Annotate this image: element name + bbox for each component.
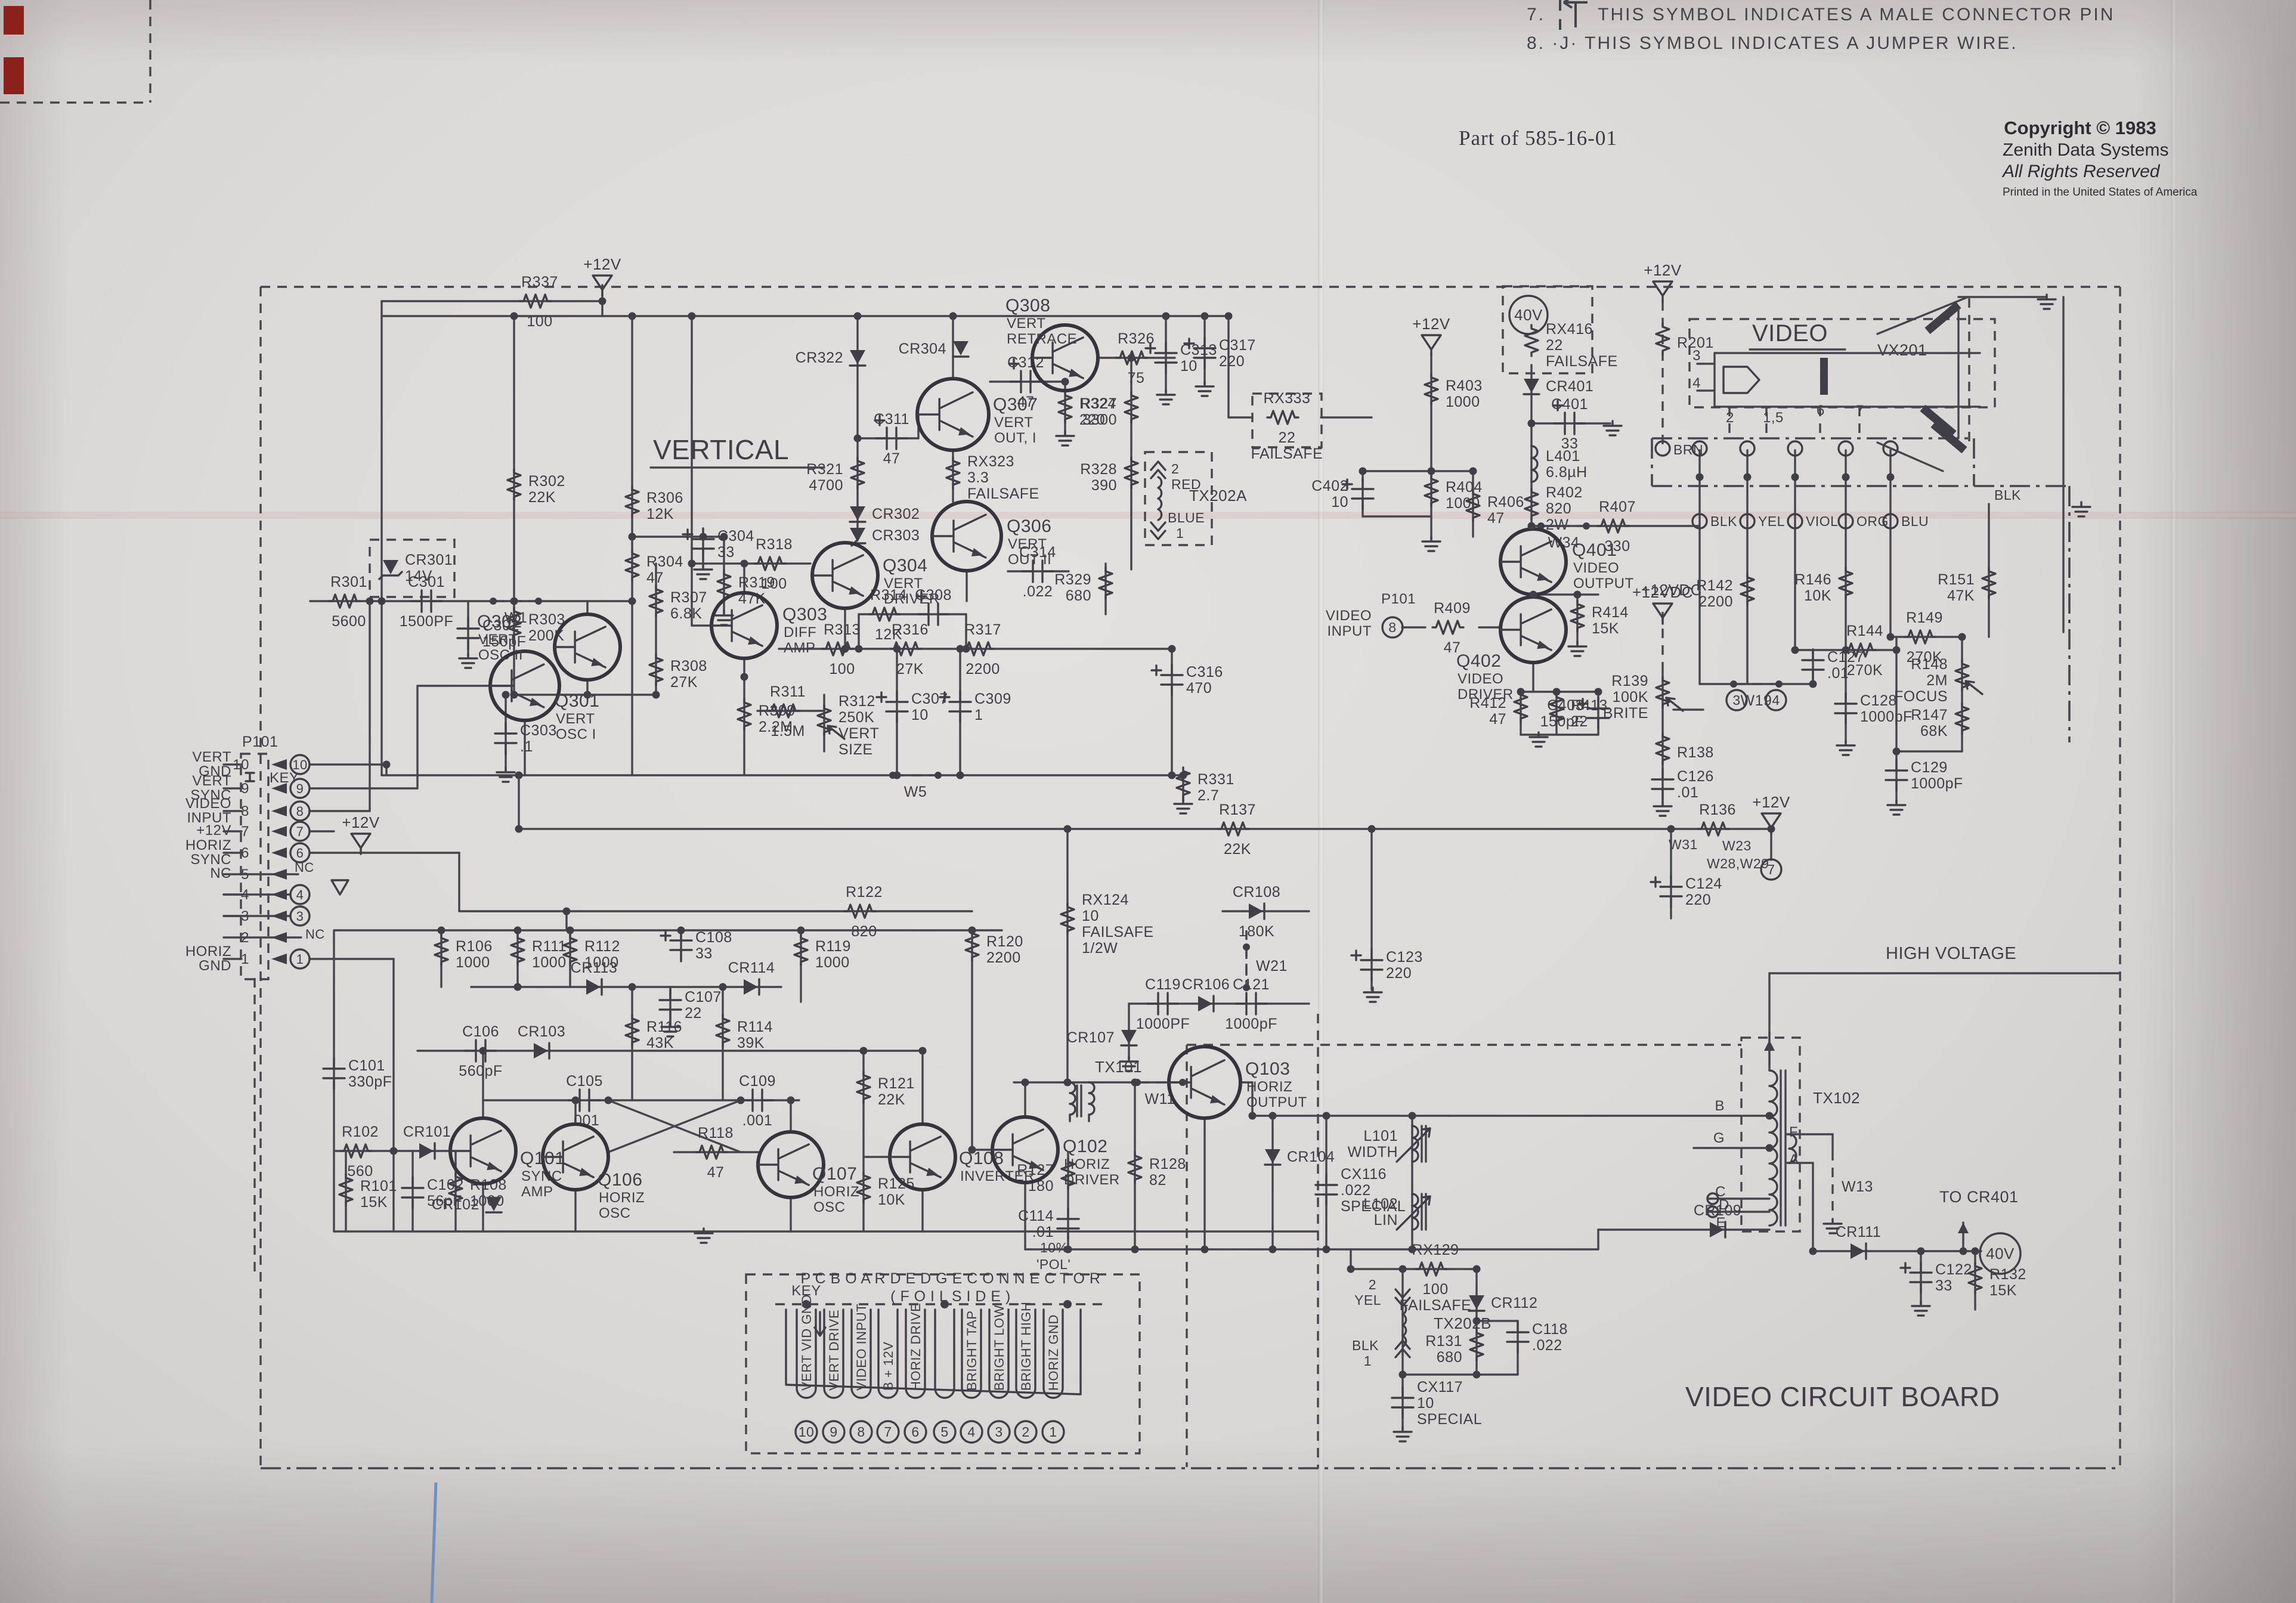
ground-symbol bbox=[715, 611, 733, 625]
power-triangle bbox=[351, 834, 370, 854]
part-CR108: CR108 bbox=[1233, 884, 1280, 900]
power-triangle bbox=[1762, 813, 1781, 834]
transistor-Q106-label: Q106 bbox=[598, 1170, 642, 1190]
transistor-Q302-label: OSC II bbox=[478, 647, 523, 663]
part-R308: 27K bbox=[670, 674, 698, 691]
part-R403: 1000 bbox=[1446, 394, 1480, 410]
part-L101: WIDTH bbox=[1348, 1144, 1398, 1161]
p101-pin-number: 9 bbox=[241, 781, 249, 797]
diode-symbol bbox=[1851, 1243, 1866, 1259]
dashed-enclosure bbox=[1689, 319, 1995, 407]
part-R119: 1000 bbox=[815, 954, 850, 971]
part-RX416: 22 bbox=[1546, 337, 1563, 354]
transistor-Q304-label: DRIVER bbox=[884, 591, 940, 607]
p101-pin-arrow bbox=[271, 847, 287, 858]
p101-pin-name: VERT bbox=[192, 749, 231, 765]
transistor-Q102-label: Q102 bbox=[1063, 1137, 1107, 1156]
part-R118: R118 bbox=[698, 1125, 734, 1141]
part-C119: 1000PF bbox=[1136, 1016, 1190, 1032]
p101-pin-number: 1 bbox=[241, 951, 249, 967]
title-vertical: VERTICAL bbox=[653, 434, 789, 465]
junction-dot bbox=[957, 772, 964, 779]
part-C313: 10 bbox=[1180, 358, 1197, 375]
title-vx201: VX201 bbox=[1877, 341, 1927, 359]
video-pin-bar bbox=[1820, 358, 1828, 395]
part-R146: 10K bbox=[1804, 587, 1831, 604]
p101-pin-arrow bbox=[271, 806, 287, 816]
transistor-Q308-emitter-arrow bbox=[1069, 369, 1081, 377]
transistor-Q304-label: Q304 bbox=[883, 556, 927, 575]
transistor-Q307-label: VERT bbox=[994, 414, 1033, 431]
junction-dot bbox=[383, 761, 391, 769]
part-R148: R148 bbox=[1911, 656, 1948, 673]
title-tx101: TX101 bbox=[1095, 1058, 1142, 1076]
part-R317: 2200 bbox=[966, 661, 1000, 677]
part-R151: R151 bbox=[1938, 571, 1975, 588]
part-R122: 820 bbox=[851, 923, 877, 940]
transistor-Q108-emitter-arrow bbox=[926, 1168, 938, 1176]
transistor-Q106-label: OSC bbox=[599, 1205, 631, 1221]
part-R326: R326 bbox=[1118, 330, 1155, 347]
power-label: +12V bbox=[583, 255, 621, 273]
tx102-primary bbox=[1769, 1070, 1777, 1226]
junction-dot bbox=[688, 312, 696, 320]
part-C107: 22 bbox=[685, 1005, 702, 1022]
jumper-dot bbox=[1583, 522, 1590, 530]
p101-pin-number: 3 bbox=[241, 908, 249, 924]
p101-pin-circle-number: 10 bbox=[292, 757, 307, 772]
part-R407: R407 bbox=[1599, 499, 1636, 515]
part-C108: 33 bbox=[695, 945, 713, 962]
part-C121: 1000pF bbox=[1225, 1016, 1277, 1032]
wire bbox=[1877, 297, 1968, 334]
part-CR104: CR104 bbox=[1287, 1149, 1335, 1165]
power-label: +12V bbox=[1412, 315, 1450, 333]
part-R402: R402 bbox=[1546, 484, 1583, 501]
junction-dot bbox=[719, 983, 727, 991]
transistor-Q107-label: Q107 bbox=[812, 1164, 857, 1184]
part-C128: C128 bbox=[1860, 692, 1897, 709]
junction-dot bbox=[1347, 1265, 1355, 1273]
junction-dot bbox=[629, 533, 636, 541]
part-CR101: CR101 bbox=[403, 1124, 451, 1140]
title-1: 1 bbox=[1176, 525, 1184, 541]
junction-dot bbox=[1893, 748, 1901, 756]
edge-finger-label: B + 12V bbox=[881, 1342, 896, 1391]
title-video-circuit-board: VIDEO CIRCUIT BOARD bbox=[1685, 1381, 2000, 1412]
title-b: B bbox=[1715, 1098, 1725, 1114]
junction-dot bbox=[1201, 1246, 1209, 1254]
junction-dot bbox=[1528, 522, 1536, 530]
part-R114: R114 bbox=[737, 1019, 773, 1035]
transistor-Q304-emitter-arrow bbox=[849, 586, 861, 595]
title-input: INPUT bbox=[1328, 623, 1372, 639]
title--12vdc: +12VDC bbox=[1641, 581, 1702, 599]
junction-dot bbox=[1399, 1371, 1407, 1379]
edge-finger-number: 7 bbox=[884, 1424, 892, 1440]
transistor-Q103-emitter-arrow bbox=[1210, 1095, 1222, 1103]
junction-dot bbox=[1249, 1112, 1257, 1120]
p101-pin-name: +12V bbox=[196, 822, 231, 838]
part-CR301: CR301 bbox=[405, 552, 453, 568]
junction-dot bbox=[1917, 1248, 1925, 1255]
part-R321: 4700 bbox=[809, 477, 843, 494]
part-R316: R316 bbox=[892, 621, 929, 638]
title-high-voltage: HIGH VOLTAGE bbox=[1886, 944, 2016, 963]
junction-dot bbox=[797, 927, 805, 934]
diode-symbol bbox=[1198, 996, 1214, 1011]
part-C307: 10 bbox=[911, 707, 929, 723]
junction-dot bbox=[572, 1097, 580, 1104]
junction-dot bbox=[737, 1097, 745, 1104]
edge-finger-number: 1 bbox=[1049, 1424, 1057, 1440]
transistor-Q306-label: OUT II bbox=[1008, 552, 1051, 568]
title-w13: W13 bbox=[1842, 1178, 1873, 1195]
part-R317: R317 bbox=[964, 621, 1001, 638]
part-R403: R403 bbox=[1446, 377, 1483, 394]
part-R311: R311 bbox=[770, 683, 806, 700]
part-C105: C105 bbox=[566, 1073, 603, 1090]
part-CR111: CR111 bbox=[1836, 1224, 1882, 1240]
ground-symbol bbox=[1364, 988, 1382, 1002]
transistor-Q103-label: HORIZ bbox=[1246, 1079, 1292, 1095]
junction-dot bbox=[438, 927, 445, 934]
part-CX117: SPECIAL bbox=[1417, 1411, 1482, 1428]
jumper-dot bbox=[535, 598, 542, 605]
part-C106: 560pF bbox=[459, 1063, 502, 1079]
part-CR303: CR303 bbox=[872, 527, 920, 544]
wire bbox=[1877, 442, 1943, 471]
title-w28-w29: W28,W29 bbox=[1707, 856, 1769, 871]
pot-wiper-arrow bbox=[1966, 681, 1982, 694]
part-RX333: FAILSAFE bbox=[1251, 445, 1323, 462]
ground-symbol bbox=[2072, 502, 2090, 516]
p101-pin-arrow bbox=[271, 889, 287, 900]
part-R102: 560 bbox=[347, 1163, 373, 1180]
ref-circle-number: 8 bbox=[1388, 620, 1396, 635]
part-R114: 39K bbox=[737, 1035, 765, 1051]
junction-dot bbox=[720, 533, 728, 541]
part-R414: 15K bbox=[1592, 620, 1619, 637]
part-R308: R308 bbox=[670, 658, 707, 674]
transistor-Q301-label: VERT bbox=[556, 711, 595, 727]
part-CR102: CR102 bbox=[432, 1196, 479, 1213]
p101-pin-number: 2 bbox=[241, 930, 249, 946]
part-R306: R306 bbox=[646, 490, 683, 506]
junction-dot bbox=[514, 983, 522, 991]
part-R318: R318 bbox=[756, 536, 793, 553]
part-RX416: FAILSAFE bbox=[1546, 353, 1618, 370]
part-RX129: FAILSAFE bbox=[1400, 1297, 1472, 1314]
edge-finger-number: 10 bbox=[799, 1424, 815, 1440]
edge-finger-label: VIDEO INPUT bbox=[854, 1304, 869, 1391]
junction-dot bbox=[741, 673, 748, 681]
part-R132: R132 bbox=[1989, 1266, 2026, 1283]
jumper-dot bbox=[1243, 943, 1250, 951]
part-R404: R404 bbox=[1446, 479, 1483, 496]
yoke-arrow bbox=[1151, 522, 1165, 539]
junction-dot bbox=[1473, 1265, 1481, 1273]
part-R120: R120 bbox=[986, 933, 1023, 950]
part-R147: R147 bbox=[1911, 707, 1948, 723]
part-R302: R302 bbox=[528, 473, 565, 490]
transistor-Q402-label: DRIVER bbox=[1458, 686, 1514, 703]
transistor-Q302-emitter-arrow bbox=[591, 658, 603, 666]
yoke-winding bbox=[1158, 477, 1162, 520]
resistor-symbol bbox=[1267, 411, 1298, 424]
part-R301: R301 bbox=[330, 574, 367, 590]
junction-dot bbox=[957, 645, 964, 653]
title-blk: BLK bbox=[1994, 487, 2021, 503]
part-R409: R409 bbox=[1434, 600, 1471, 617]
title-10-: 10% bbox=[1040, 1240, 1069, 1255]
ground-symbol bbox=[1196, 382, 1214, 396]
part-C106: C106 bbox=[462, 1023, 499, 1040]
junction-dot bbox=[1428, 468, 1435, 475]
part-R301: 5600 bbox=[332, 613, 366, 630]
junction-dot bbox=[629, 598, 636, 605]
p101-key-slot bbox=[246, 773, 254, 781]
power-label: +12V bbox=[342, 813, 380, 831]
part-R142: 2200 bbox=[1698, 593, 1733, 610]
part-C303: C303 bbox=[520, 722, 557, 739]
junction-dot bbox=[854, 435, 862, 442]
jumper-dot bbox=[490, 598, 497, 605]
transistor-Q103-label: Q103 bbox=[1245, 1059, 1290, 1079]
junction-dot bbox=[563, 908, 571, 915]
transistor-Q308-label: Q308 bbox=[1005, 296, 1050, 315]
part-CR112: CR112 bbox=[1491, 1295, 1537, 1311]
p101-pin-arrow bbox=[271, 911, 287, 921]
jumper-dot bbox=[935, 772, 942, 779]
junction-dot bbox=[968, 927, 976, 934]
part-C402: C402 bbox=[1311, 478, 1348, 494]
part-R111: R111 bbox=[532, 938, 567, 955]
junction-dot bbox=[502, 691, 510, 699]
voltage-circle-label: 40V bbox=[1514, 306, 1543, 324]
part-C126: C126 bbox=[1677, 768, 1714, 785]
part-R139: BRITE bbox=[1603, 705, 1648, 722]
part-C126: .01 bbox=[1677, 784, 1698, 801]
part-CX116: CX116 bbox=[1341, 1166, 1387, 1183]
part-CR108: 180K bbox=[1239, 923, 1274, 940]
transistor-Q306-emitter-arrow bbox=[971, 548, 983, 556]
transistor-Q302-label: Q302 bbox=[477, 612, 522, 632]
part-R139: R139 bbox=[1611, 673, 1648, 689]
transistor-Q101-emitter-arrow bbox=[487, 1162, 499, 1170]
part-C107: C107 bbox=[685, 989, 722, 1005]
title-nc: NC bbox=[305, 927, 325, 942]
title-tx102: TX102 bbox=[1813, 1089, 1860, 1107]
junction-dot bbox=[1553, 688, 1561, 696]
power-triangle bbox=[1422, 335, 1441, 355]
title-2: 2 bbox=[1369, 1277, 1376, 1292]
junction-dot bbox=[1064, 825, 1072, 833]
p101-pin-arrow bbox=[271, 932, 287, 943]
part-RX416: RX416 bbox=[1546, 321, 1593, 338]
part-C109: C109 bbox=[739, 1073, 776, 1090]
part-R414: R414 bbox=[1592, 604, 1629, 621]
diode-symbol bbox=[850, 506, 865, 522]
part-C122: C122 bbox=[1935, 1261, 1972, 1278]
title-1-5: 1,5 bbox=[1763, 410, 1784, 426]
part-R302: 22K bbox=[528, 489, 556, 506]
part-RX129: 100 bbox=[1422, 1281, 1448, 1298]
junction-dot bbox=[1809, 680, 1817, 688]
edge-finger-number: 4 bbox=[967, 1424, 975, 1440]
part-R138: R138 bbox=[1677, 744, 1714, 761]
p101-pin-number: 4 bbox=[241, 887, 249, 903]
p101-pin-circle-number: 3 bbox=[296, 909, 304, 924]
junction-dot bbox=[688, 560, 696, 568]
transistor-Q303-label: DIFF bbox=[784, 624, 816, 640]
part-RX129: RX129 bbox=[1412, 1242, 1459, 1258]
diode-symbol bbox=[1265, 1149, 1280, 1165]
part-R329: 680 bbox=[1066, 587, 1091, 604]
title-7: 7 bbox=[1856, 403, 1864, 419]
junction-dot bbox=[510, 691, 518, 699]
part-C301: C301 bbox=[408, 574, 445, 590]
part-R327: R327 bbox=[1080, 395, 1117, 412]
part-R106: 1000 bbox=[456, 954, 490, 971]
part-C301: 1500PF bbox=[400, 613, 454, 630]
part-CR106: CR106 bbox=[1182, 976, 1230, 993]
part-R337: 100 bbox=[527, 313, 552, 330]
diode-symbol bbox=[1524, 379, 1539, 394]
part-R337: R337 bbox=[521, 274, 558, 290]
p101-pin-circle-number: 4 bbox=[296, 887, 304, 902]
voltage-circle-label: 40V bbox=[1986, 1245, 2015, 1262]
part-CR302: CR302 bbox=[872, 506, 920, 522]
part-R119: R119 bbox=[815, 938, 851, 955]
p101-pin-arrow bbox=[271, 759, 287, 770]
title-d: D bbox=[1719, 1197, 1729, 1213]
part-C307: C307 bbox=[911, 691, 948, 707]
edge-connector-title: P C B O A R D E D G E C O N N E C T O R bbox=[801, 1270, 1101, 1287]
junction-dot bbox=[366, 598, 374, 605]
transistor-Q304-label: VERT bbox=[884, 575, 923, 592]
transistor-Q401-label: Q401 bbox=[1572, 540, 1617, 560]
junction-dot bbox=[652, 691, 660, 699]
power-label: +12V bbox=[1752, 793, 1790, 811]
part-R131: 680 bbox=[1437, 1349, 1462, 1366]
junction-dot bbox=[1887, 633, 1895, 641]
junction-dot bbox=[1887, 474, 1895, 481]
title-blue: BLUE bbox=[1168, 510, 1205, 525]
wire-color-label: BLK bbox=[1710, 513, 1737, 529]
part-R128: 82 bbox=[1149, 1172, 1166, 1189]
p101-pin-number: 10 bbox=[233, 757, 249, 773]
part-CX117: CX117 bbox=[1417, 1379, 1463, 1395]
transistor-Q303-label: AMP bbox=[784, 640, 816, 656]
junction-dot bbox=[1063, 1300, 1072, 1308]
part-R112: R112 bbox=[584, 938, 620, 955]
part-C119: C119 bbox=[1145, 976, 1181, 993]
part-C316: 470 bbox=[1186, 680, 1212, 697]
transistor-Q307-label: OUT, I bbox=[994, 430, 1036, 446]
p101-pin-number: 6 bbox=[241, 845, 249, 861]
part-R131: R131 bbox=[1425, 1333, 1462, 1350]
junction-dot bbox=[893, 645, 901, 653]
title-blk: BLK bbox=[1352, 1338, 1379, 1353]
part-C128: 1000pF bbox=[1860, 708, 1913, 725]
junction-dot bbox=[1530, 591, 1537, 599]
resistor-symbol bbox=[1432, 621, 1463, 634]
part-CR113: CR113 bbox=[571, 960, 617, 976]
title-g: G bbox=[1713, 1130, 1725, 1146]
title-video: VIDEO bbox=[1752, 320, 1828, 346]
title-yel: YEL bbox=[1354, 1292, 1381, 1308]
junction-dot bbox=[787, 1097, 795, 1104]
ground-symbol bbox=[1568, 642, 1586, 656]
junction-dot bbox=[1168, 645, 1176, 653]
part-W5: W5 bbox=[904, 784, 927, 800]
part-R402: 2W bbox=[1546, 516, 1569, 533]
tx101-winding bbox=[1070, 1082, 1075, 1121]
part-R331: 2.7 bbox=[1197, 787, 1219, 804]
part-R329: R329 bbox=[1054, 571, 1091, 588]
transistor-Q102-label: DRIVER bbox=[1064, 1172, 1120, 1188]
part-R111: 1000 bbox=[532, 954, 567, 971]
diode-symbol bbox=[534, 1043, 549, 1059]
junction-dot bbox=[1574, 591, 1582, 599]
junction-dot bbox=[1842, 474, 1850, 481]
junction-dot bbox=[1269, 1112, 1277, 1120]
part-R413: R413 bbox=[1571, 697, 1608, 714]
diode-symbol bbox=[850, 528, 865, 543]
part-R307: 6.8K bbox=[670, 605, 702, 622]
transistor-Q303-label: Q303 bbox=[782, 605, 827, 624]
junction-dot bbox=[510, 598, 518, 605]
part-L401: L401 bbox=[1546, 448, 1580, 465]
p101-pin-name: NC bbox=[210, 865, 231, 881]
junction-dot bbox=[1517, 688, 1525, 696]
part-CR107: CR107 bbox=[1067, 1029, 1115, 1046]
ground-symbol bbox=[1837, 741, 1855, 755]
transistor-Q107-label: HORIZ bbox=[813, 1184, 859, 1200]
part-C304: 33 bbox=[717, 544, 735, 561]
junction-dot bbox=[510, 312, 518, 320]
junction-dot bbox=[1473, 1371, 1481, 1379]
ground-symbol bbox=[1422, 537, 1440, 551]
edge-finger-label: BRIGHT LOW bbox=[992, 1305, 1007, 1391]
part-C122: 33 bbox=[1935, 1277, 1952, 1294]
p101-pin-circle-number: 9 bbox=[296, 781, 304, 796]
edge-finger-number: 5 bbox=[940, 1424, 948, 1440]
part-R327: 3300 bbox=[1082, 411, 1117, 428]
transistor-Q307-emitter-arrow bbox=[958, 427, 970, 435]
part-R144: R144 bbox=[1846, 623, 1883, 639]
power-label: +12V bbox=[1644, 261, 1682, 279]
part-C129: C129 bbox=[1911, 759, 1948, 776]
part-C311: 47 bbox=[883, 450, 901, 467]
ground-symbol bbox=[1157, 390, 1175, 404]
part-C121: C121 bbox=[1233, 976, 1270, 993]
junction-dot bbox=[1595, 688, 1602, 696]
junction-dot bbox=[1409, 1112, 1416, 1120]
ground-symbol bbox=[694, 565, 712, 579]
part-R151: 47K bbox=[1947, 587, 1975, 604]
plus-sign bbox=[1901, 1263, 1910, 1273]
junction-dot bbox=[968, 1146, 976, 1154]
title-p101: P101 bbox=[1381, 591, 1416, 607]
junction-dot bbox=[1225, 312, 1233, 320]
junction-dot bbox=[940, 1300, 949, 1308]
part-R146: R146 bbox=[1794, 571, 1831, 588]
part-C309: 1 bbox=[974, 707, 983, 723]
junction-dot bbox=[390, 1147, 398, 1155]
transistor-Q306-label: Q306 bbox=[1007, 516, 1051, 536]
